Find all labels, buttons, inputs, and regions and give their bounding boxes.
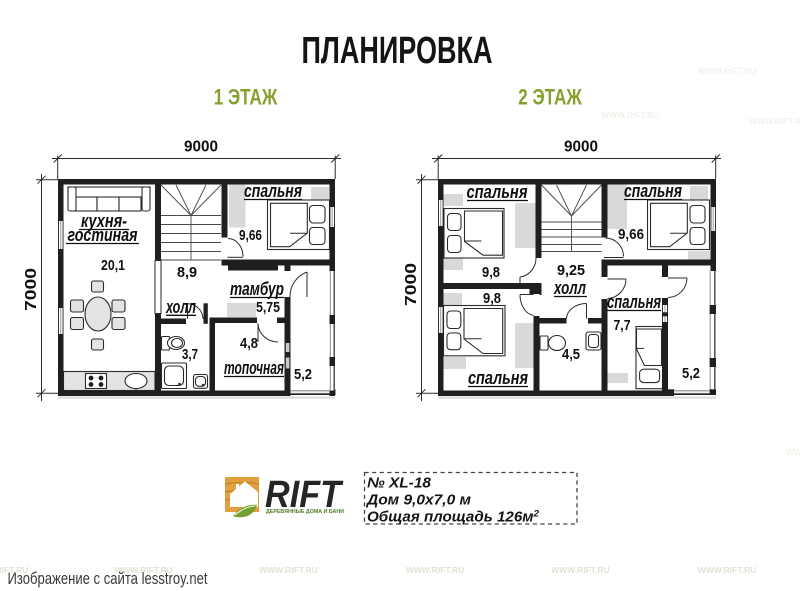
svg-text:WWW.RIFT.RU: WWW.RIFT.RU [749, 116, 800, 126]
svg-text:5,2: 5,2 [294, 366, 312, 383]
svg-text:спальня: спальня [624, 180, 682, 201]
svg-text:3,7: 3,7 [182, 346, 198, 363]
svg-text:ПЛАНИРОВКА: ПЛАНИРОВКА [302, 30, 493, 72]
svg-text:4,5: 4,5 [562, 346, 580, 363]
svg-text:спальня: спальня [468, 367, 528, 388]
svg-text:20,1: 20,1 [101, 257, 125, 274]
svg-text:1 ЭТАЖ: 1 ЭТАЖ [214, 85, 278, 110]
svg-text:9000: 9000 [184, 139, 218, 156]
svg-text:5,75: 5,75 [256, 299, 280, 316]
svg-text:Общая площадь 126м2: Общая площадь 126м2 [367, 509, 540, 526]
svg-text:7000: 7000 [403, 263, 420, 306]
svg-text:спальня: спальня [607, 291, 661, 312]
svg-text:спальня: спальня [244, 180, 302, 201]
svg-text:WWW.RIFT.RU: WWW.RIFT.RU [698, 66, 757, 76]
svg-text:7000: 7000 [23, 268, 40, 311]
svg-text:WWW.RIFT.RU: WWW.RIFT.RU [786, 447, 800, 457]
svg-text:тамбур: тамбур [230, 278, 284, 299]
svg-text:9,8: 9,8 [482, 264, 500, 281]
svg-text:8,9: 8,9 [177, 264, 197, 281]
svg-text:гостиная: гостиная [68, 224, 138, 245]
svg-text:ДЕРЕВЯННЫЕ ДОМА И БАНИ: ДЕРЕВЯННЫЕ ДОМА И БАНИ [266, 509, 344, 515]
svg-text:спальня: спальня [467, 181, 528, 202]
svg-text:7,7: 7,7 [614, 317, 631, 334]
svg-text:холл: холл [553, 277, 586, 298]
svg-text:9,66: 9,66 [239, 227, 262, 244]
svg-text:9,66: 9,66 [618, 226, 644, 243]
svg-text:9000: 9000 [564, 139, 598, 156]
svg-text:холл: холл [165, 296, 196, 317]
svg-text:Изображение с сайта lesstroy.n: Изображение с сайта lesstroy.net [8, 570, 208, 588]
svg-text:2 ЭТАЖ: 2 ЭТАЖ [518, 85, 582, 110]
svg-text:WWW.RIFT.RU: WWW.RIFT.RU [259, 565, 318, 575]
svg-text:WWW.RIFT.RU: WWW.RIFT.RU [551, 565, 610, 575]
svg-text:№ XL-18: № XL-18 [367, 476, 432, 492]
svg-text:9,8: 9,8 [483, 290, 501, 307]
svg-text:WWW.RIFT.RU: WWW.RIFT.RU [406, 565, 465, 575]
svg-text:4,8: 4,8 [240, 335, 258, 352]
svg-text:топочная: топочная [224, 357, 284, 378]
svg-text:WWW.RIFT.RU: WWW.RIFT.RU [698, 565, 757, 575]
svg-text:5,2: 5,2 [682, 365, 700, 382]
svg-text:Дом 9,0х7,0 м: Дом 9,0х7,0 м [365, 493, 471, 509]
svg-text:WWW.RIFT.RU: WWW.RIFT.RU [601, 110, 660, 120]
